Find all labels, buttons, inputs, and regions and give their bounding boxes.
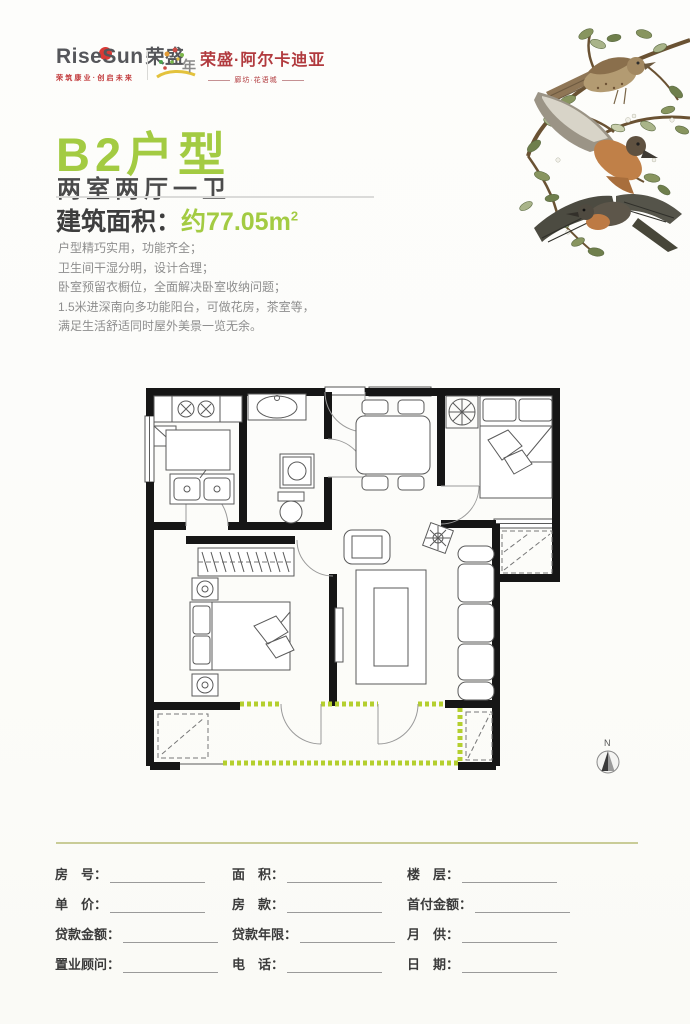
form-field: 贷款金额： [55,921,218,943]
feature-item: 卧室预留衣橱位，全面解决卧室收纳问题； [58,278,315,298]
project-logo: 荣盛·阿尔卡迪亚 廊坊·花语城 [200,46,312,85]
dining-area [356,400,430,490]
bedroom-2 [446,396,552,498]
feature-item: 卫生间干湿分明，设计合理； [58,259,315,279]
svg-text:N: N [604,738,611,748]
field-label: 贷款年限： [232,924,297,943]
anniversary-badge: 年 [153,42,199,86]
field-label: 楼 层： [407,864,459,883]
bathroom [248,394,314,523]
field-blank-line [110,896,205,913]
flyer-page: RiseSun荣盛 荣筑康业·创启未来 年 荣盛·阿尔卡迪亚 廊坊·花语城 [0,0,690,1024]
floorplan-drawing: N [128,374,638,789]
field-label: 单 价： [55,894,107,913]
living-room [335,523,494,700]
form-divider [56,842,638,844]
feature-list: 户型精巧实用，功能齐全； 卫生间干湿分明，设计合理； 卧室预留衣橱位，全面解决卧… [58,239,315,337]
form-field: 电 话： [232,951,395,973]
form-column-1: 房 号： 单 价： 贷款金额： 置业顾问： [55,861,218,981]
field-blank-line [123,926,218,943]
form-column-3: 楼 层： 首付金额： 月 供： 日 期： [407,861,570,981]
form-field: 日 期： [407,951,570,973]
field-blank-line [287,896,382,913]
subtitle-dash-left [208,80,230,81]
feature-item: 满足生活舒适同时屋外美景一览无余。 [58,317,315,337]
svg-text:年: 年 [182,58,196,74]
field-blank-line [475,896,570,913]
form-field: 贷款年限： [232,921,395,943]
bird-bottom [534,194,682,252]
field-blank-line [110,866,205,883]
field-blank-line [462,866,557,883]
form-field: 房 款： [232,891,395,913]
project-subtitle: 廊坊·花语城 [234,75,277,85]
ac-platform-right-top [502,531,552,573]
form-column-2: 面 积： 房 款： 贷款年限： 电 话： [232,861,395,981]
master-bedroom [190,548,294,696]
brand-latin: RiseSun [56,45,144,68]
birds-illustration [438,0,690,264]
project-name: 荣盛·阿尔卡迪亚 [200,46,312,70]
field-blank-line [462,926,557,943]
floorplan: N [128,374,638,794]
anniversary-badge-icon: 年 [153,42,199,86]
birds-artwork [438,0,690,264]
header-divider [147,50,148,80]
field-label: 电 话： [232,954,284,973]
field-label: 首付金额： [407,894,472,913]
unit-layout: 两室两厅一卫 [57,169,231,204]
field-label: 面 积： [232,864,284,883]
form-field: 首付金额： [407,891,570,913]
title-divider [56,196,374,198]
area-line: 建筑面积：约77.05m2 [56,202,298,238]
field-label: 房 款： [232,894,284,913]
area-label: 建筑面积： [56,208,181,236]
balcony-window-lines [180,704,460,764]
form-field: 面 积： [232,861,395,883]
kitchen [154,396,242,504]
field-blank-line [123,956,218,973]
field-blank-line [300,926,395,943]
form-field: 房 号： [55,861,218,883]
field-label: 置业顾问： [55,954,120,973]
subtitle-dash-right [282,80,304,81]
field-label: 房 号： [55,864,107,883]
field-label: 日 期： [407,954,459,973]
field-blank-line [287,866,382,883]
form-field: 月 供： [407,921,570,943]
form-field: 楼 层： [407,861,570,883]
field-blank-line [462,956,557,973]
compass-icon: N [597,738,619,773]
balcony [158,712,492,760]
form-field: 置业顾问： [55,951,218,973]
field-blank-line [287,956,382,973]
feature-item: 户型精巧实用，功能齐全； [58,239,315,259]
field-label: 贷款金额： [55,924,120,943]
form-field: 单 价： [55,891,218,913]
project-subtitle-row: 廊坊·花语城 [200,75,312,85]
feature-item: 1.5米进深南向多功能阳台，可做花房，茶室等， [58,298,315,318]
bird-top [546,57,656,104]
area-value: 约77.05m2 [181,208,298,236]
field-label: 月 供： [407,924,459,943]
